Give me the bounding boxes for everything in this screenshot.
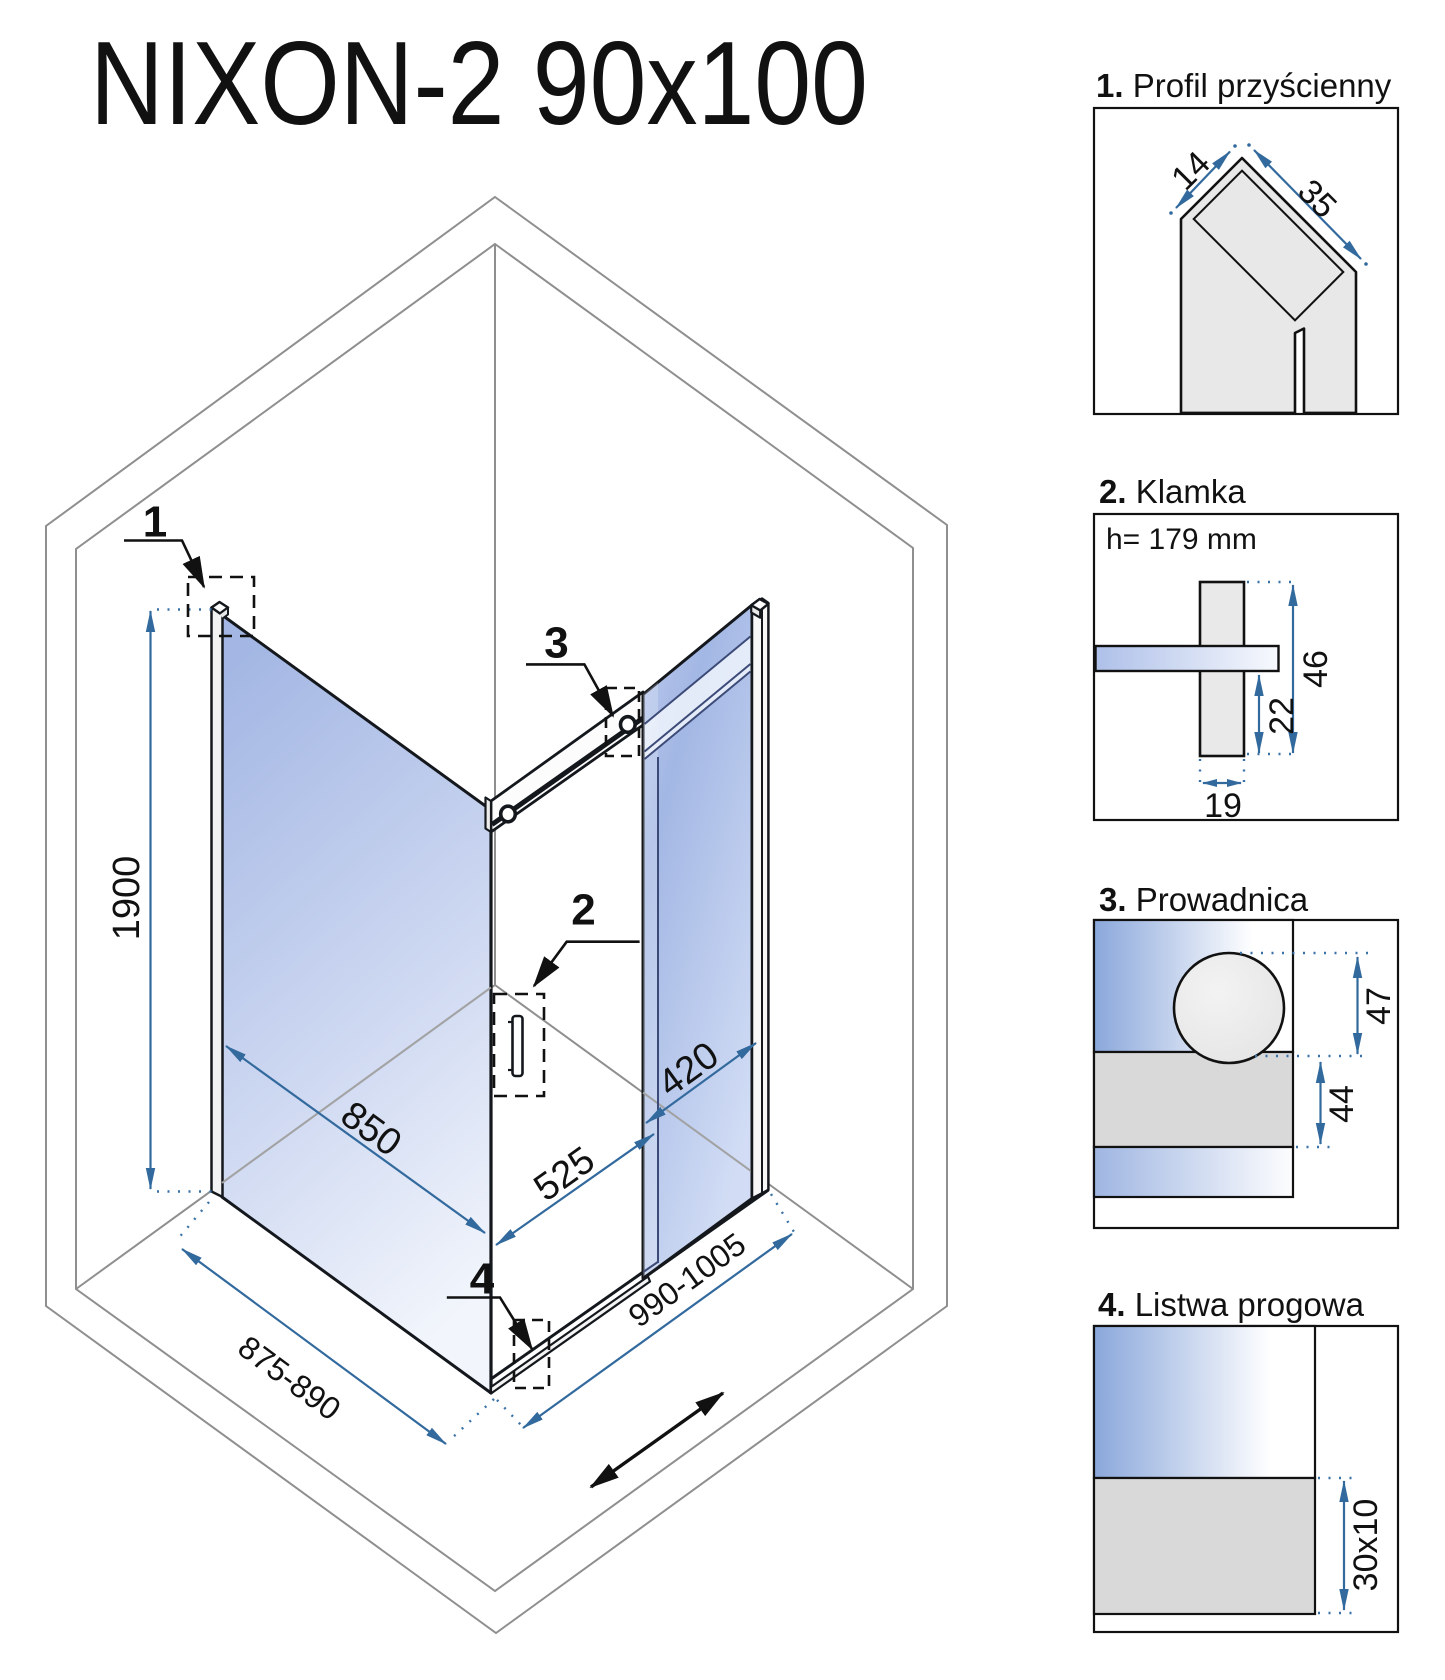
svg-text:22: 22 (1263, 697, 1301, 735)
svg-text:h= 179 mm: h= 179 mm (1106, 523, 1257, 556)
svg-text:3: 3 (544, 619, 568, 668)
svg-text:1900: 1900 (106, 856, 148, 941)
svg-text:30x10: 30x10 (1347, 1499, 1385, 1592)
svg-text:2. Klamka: 2. Klamka (1099, 473, 1246, 510)
svg-text:1. Profil przyścienny: 1. Profil przyścienny (1096, 67, 1392, 104)
svg-text:19: 19 (1204, 787, 1242, 825)
svg-text:47: 47 (1360, 987, 1398, 1025)
svg-text:4. Listwa progowa: 4. Listwa progowa (1098, 1286, 1365, 1323)
svg-text:3. Prowadnica: 3. Prowadnica (1099, 881, 1309, 918)
svg-text:44: 44 (1323, 1085, 1361, 1123)
svg-text:4: 4 (470, 1255, 495, 1304)
svg-text:46: 46 (1297, 650, 1335, 688)
svg-text:NIXON-2 90x100: NIXON-2 90x100 (90, 17, 868, 150)
svg-text:2: 2 (571, 886, 595, 935)
svg-text:1: 1 (143, 498, 167, 547)
